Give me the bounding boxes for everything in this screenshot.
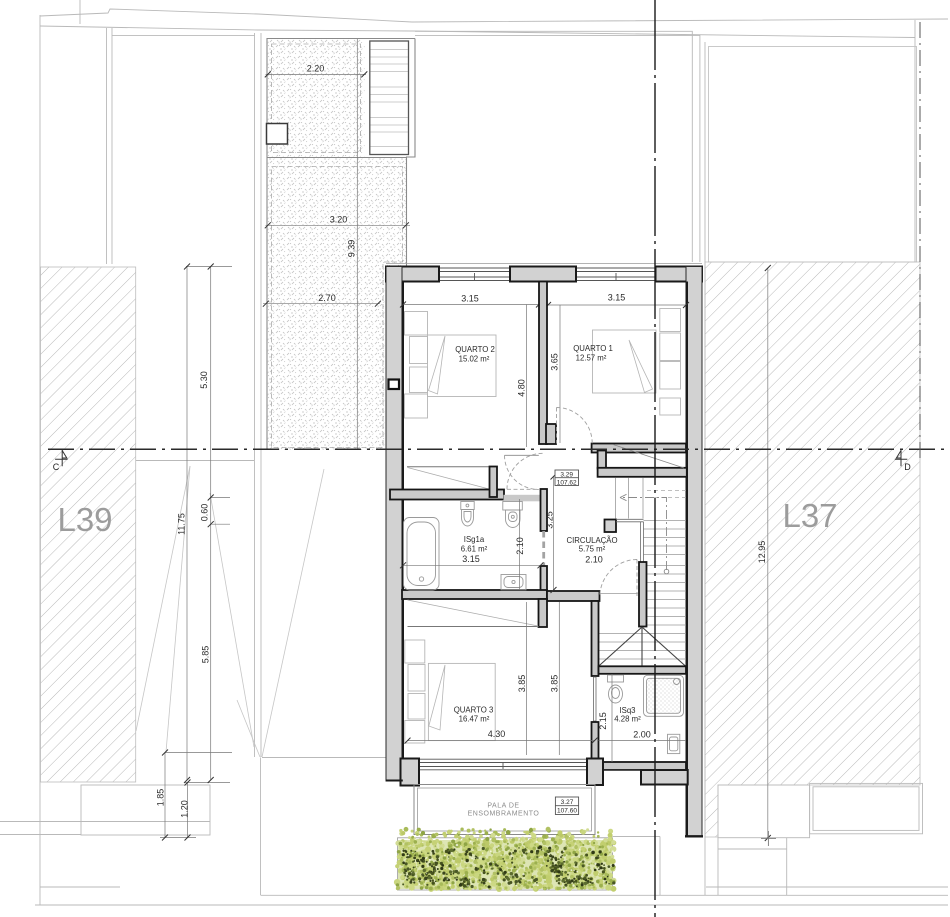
svg-text:3.85: 3.85 [550, 675, 560, 693]
svg-text:2.70: 2.70 [318, 293, 336, 303]
svg-text:L39: L39 [57, 501, 112, 538]
svg-text:QUARTO 1: QUARTO 1 [573, 344, 613, 353]
svg-text:3.15: 3.15 [462, 554, 480, 564]
svg-text:5.30: 5.30 [199, 371, 209, 389]
svg-text:3.85: 3.85 [517, 675, 527, 693]
svg-text:3.29: 3.29 [560, 471, 573, 478]
svg-text:QUARTO 3: QUARTO 3 [454, 706, 494, 715]
svg-text:ENSOMBRAMENTO: ENSOMBRAMENTO [468, 811, 540, 818]
svg-text:1.20: 1.20 [180, 800, 190, 818]
svg-text:4.30: 4.30 [488, 729, 506, 739]
svg-text:12.57 m²: 12.57 m² [576, 354, 607, 363]
svg-text:PALA DE: PALA DE [487, 803, 519, 810]
svg-text:QUARTO 2: QUARTO 2 [455, 345, 495, 354]
svg-text:D: D [904, 462, 911, 472]
svg-text:2.10: 2.10 [515, 537, 525, 555]
svg-text:1.85: 1.85 [156, 789, 166, 807]
svg-text:3.20: 3.20 [330, 215, 348, 225]
svg-text:4.28 m²: 4.28 m² [614, 715, 641, 724]
svg-text:5.85: 5.85 [201, 646, 211, 664]
svg-text:2.10: 2.10 [585, 555, 603, 565]
svg-text:107.60: 107.60 [557, 808, 577, 815]
svg-text:2.15: 2.15 [598, 712, 608, 730]
svg-text:107.62: 107.62 [557, 479, 577, 486]
svg-text:2.20: 2.20 [307, 64, 325, 74]
svg-text:4.80: 4.80 [517, 379, 527, 397]
svg-text:3.25: 3.25 [545, 511, 555, 529]
svg-text:5.75 m²: 5.75 m² [579, 545, 606, 554]
svg-text:15.02 m²: 15.02 m² [459, 355, 490, 364]
svg-text:6.61 m²: 6.61 m² [461, 545, 488, 554]
svg-text:9.39: 9.39 [347, 240, 357, 258]
svg-text:0.60: 0.60 [200, 504, 210, 522]
svg-text:3.65: 3.65 [550, 353, 560, 371]
svg-text:3.15: 3.15 [608, 293, 626, 303]
svg-text:2.00: 2.00 [633, 730, 651, 740]
svg-text:C: C [53, 462, 60, 472]
svg-text:ISg1a: ISg1a [464, 535, 485, 544]
svg-text:12.95: 12.95 [757, 541, 767, 564]
svg-text:11.75: 11.75 [177, 513, 187, 535]
svg-text:3.15: 3.15 [461, 294, 479, 304]
svg-text:L37: L37 [782, 497, 837, 534]
svg-text:3.27: 3.27 [561, 799, 574, 806]
svg-text:16.47 m²: 16.47 m² [459, 715, 490, 724]
